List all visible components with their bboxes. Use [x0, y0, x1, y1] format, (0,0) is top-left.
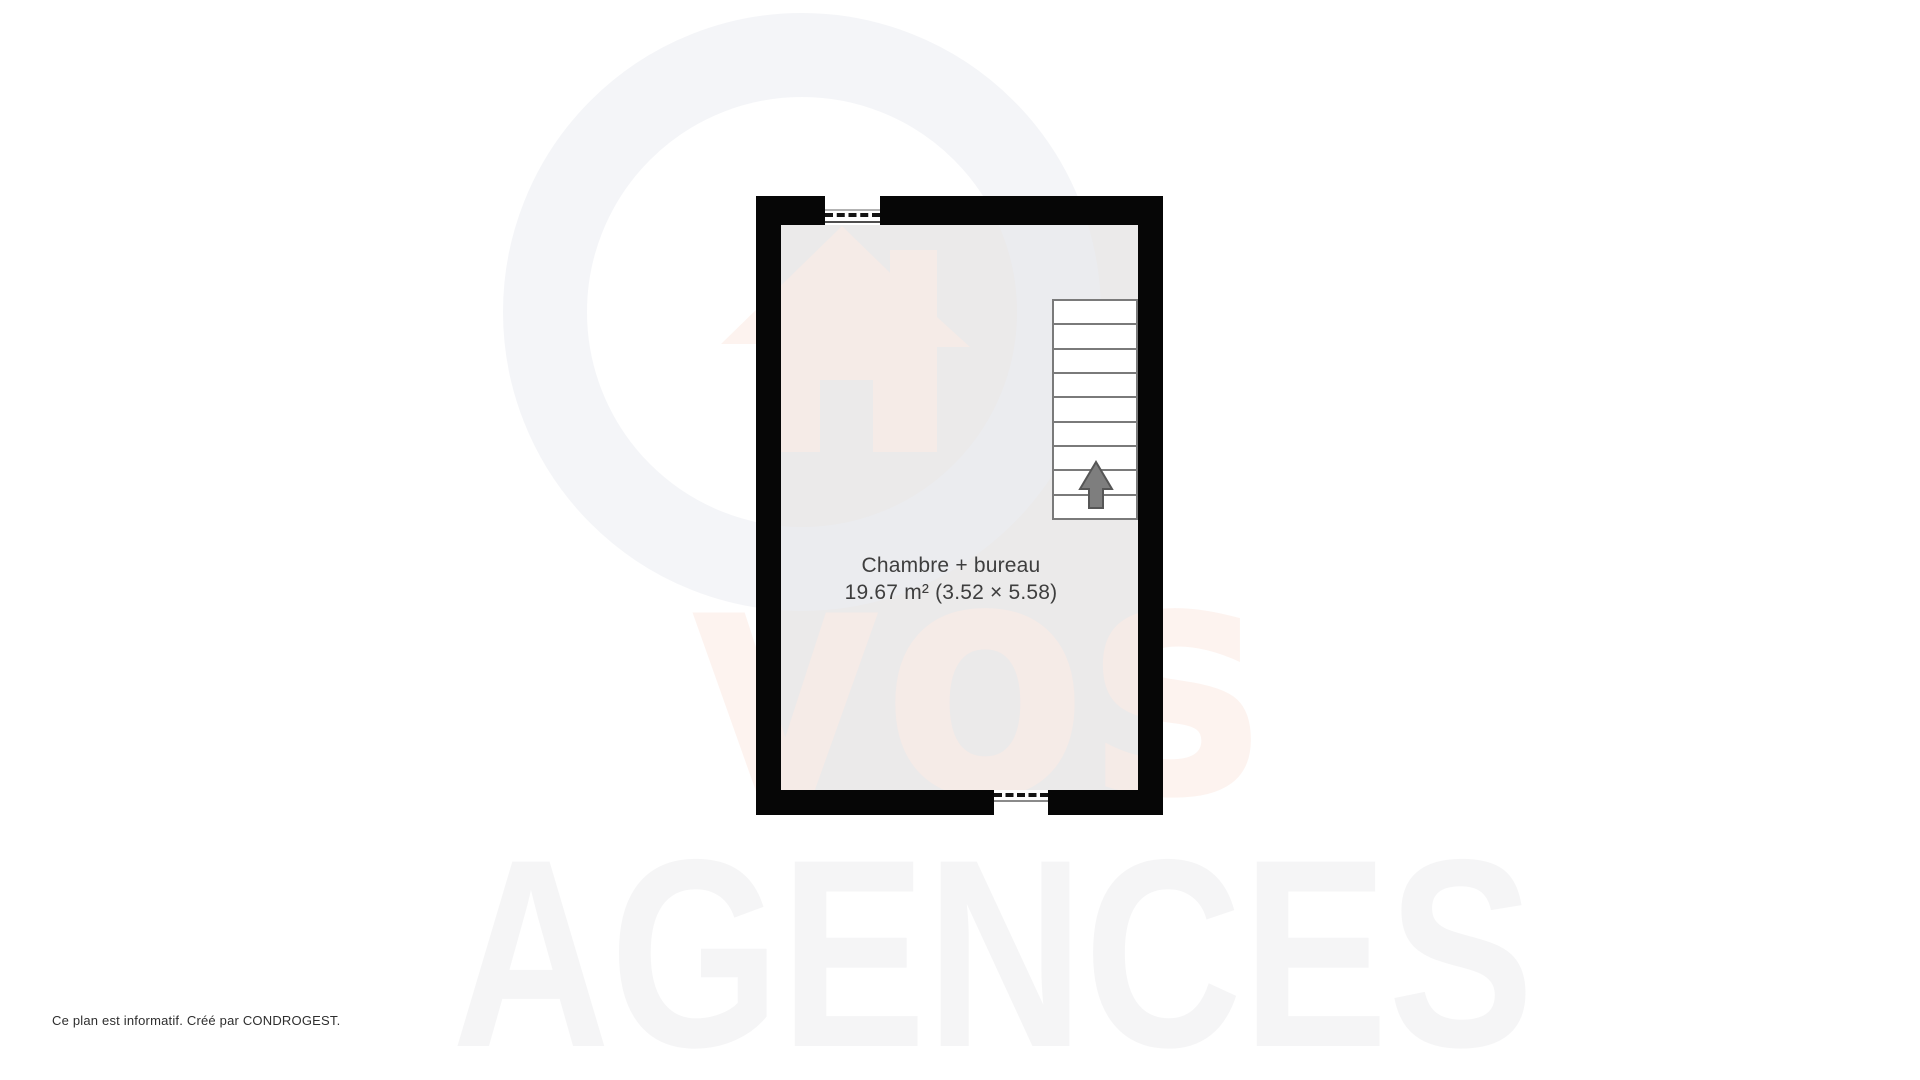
- window-top-icon: [825, 196, 880, 225]
- room-area: 19.67 m² (3.52 × 5.58): [751, 579, 1151, 606]
- stair-step: [1054, 301, 1136, 323]
- window-glass-line: [994, 793, 1048, 797]
- stair-step: [1054, 372, 1136, 396]
- stair-step: [1054, 421, 1136, 445]
- stair-step: [1054, 348, 1136, 372]
- stairs-up-arrow-icon: [1075, 456, 1117, 511]
- window-frame-line: [825, 221, 880, 223]
- footer-disclaimer: Ce plan est informatif. Créé par CONDROG…: [52, 1013, 340, 1028]
- window-frame-line: [825, 209, 880, 211]
- window-bottom-icon: [994, 790, 1048, 815]
- stair-step: [1054, 323, 1136, 347]
- stair-step: [1054, 396, 1136, 420]
- room-label: Chambre + bureau 19.67 m² (3.52 × 5.58): [751, 552, 1151, 606]
- window-glass-line: [825, 213, 880, 217]
- floorplan-canvas: vos AGENCES Chambre + bureau 19.67 m² (3…: [0, 0, 1920, 1080]
- agency-watermark-text: AGENCES: [452, 803, 1534, 1080]
- window-frame-line: [994, 800, 1048, 802]
- room-name: Chambre + bureau: [751, 552, 1151, 579]
